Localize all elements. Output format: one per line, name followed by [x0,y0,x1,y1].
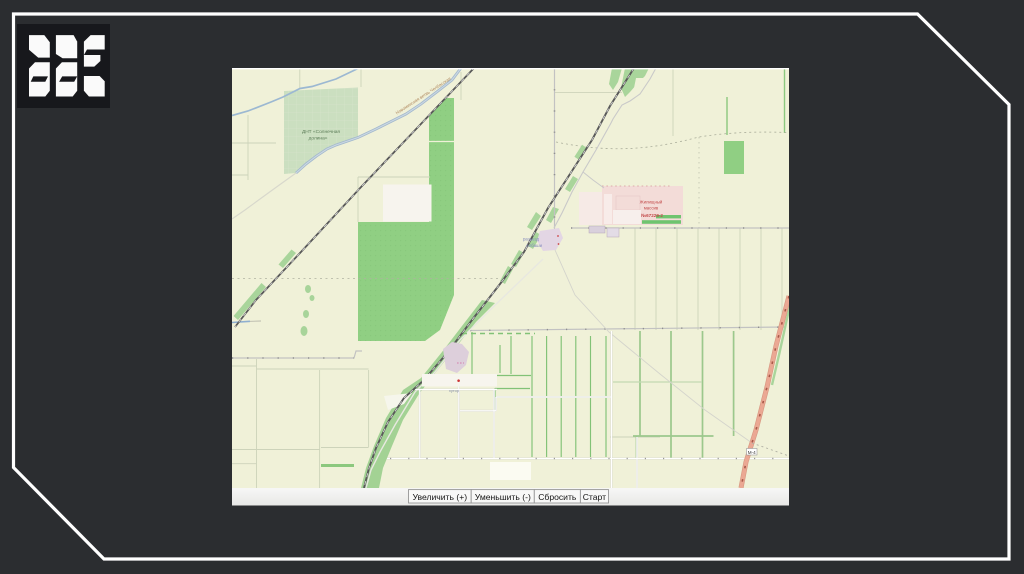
svg-text:Сбросить: Сбросить [538,492,577,502]
svg-text:разъезд: разъезд [523,237,539,242]
svg-text:массив: массив [644,206,659,211]
svg-text:Албаши: Албаши [526,243,543,248]
svg-text:долина»: долина» [309,137,328,142]
svg-text:№67229-2: №67229-2 [641,213,663,218]
svg-text:Жилищный: Жилищный [640,200,663,205]
svg-text:Уменьшить (-): Уменьшить (-) [475,492,531,502]
svg-text:Увеличить (+): Увеличить (+) [413,492,468,502]
svg-text:хутор: хутор [449,388,460,393]
svg-text:Старт: Старт [583,492,606,502]
svg-text:ДНТ «Солнечная: ДНТ «Солнечная [302,129,340,135]
svg-text:М-4: М-4 [748,450,756,455]
